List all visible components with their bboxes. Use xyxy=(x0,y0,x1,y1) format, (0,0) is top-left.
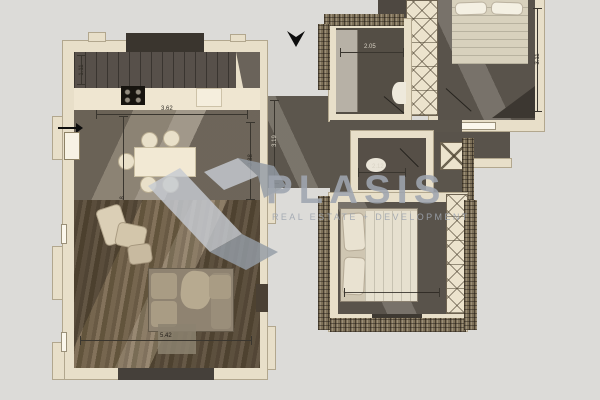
brand-name: PLASIS xyxy=(266,170,446,210)
floor-plan-image: 1.11 3.62 2.48 2.88 5.42 3.19 xyxy=(0,0,600,400)
window xyxy=(61,224,67,244)
dimension-label: 3.62 xyxy=(161,106,173,112)
dimension-line-top xyxy=(96,114,248,115)
stone-wall xyxy=(318,24,330,90)
sofa-cushion xyxy=(209,275,231,299)
dimension-label: 5.42 xyxy=(160,333,172,339)
window xyxy=(460,122,496,130)
down-arrow-marker xyxy=(287,31,305,48)
balcony-door xyxy=(256,284,268,312)
dining-chair xyxy=(118,153,135,170)
stone-wall xyxy=(462,138,474,200)
bed-pillow xyxy=(491,1,523,15)
dining-chair xyxy=(163,130,180,147)
wall-pilaster xyxy=(267,326,276,370)
sofa-cushion xyxy=(151,273,177,299)
bed xyxy=(340,208,418,302)
wall-pilaster xyxy=(88,32,106,42)
dimension-label: 3.11 xyxy=(535,47,541,71)
sofa-blanket xyxy=(179,270,213,311)
brand-logo-mark xyxy=(146,156,286,271)
wall-pilaster xyxy=(52,116,63,160)
brand-logo xyxy=(146,156,286,271)
brand-tagline: REAL ESTATE + DEVELOPMENT xyxy=(272,213,470,222)
stone-wall xyxy=(324,14,404,26)
floor-mat xyxy=(158,324,196,354)
dimension-label: 2.05 xyxy=(364,44,376,50)
patio-door xyxy=(118,368,214,380)
entrance-door xyxy=(64,132,80,160)
refrigerator xyxy=(196,88,222,107)
staircase xyxy=(74,52,236,88)
bed xyxy=(452,0,528,64)
dimension-label: 1.11 xyxy=(79,58,85,82)
dimension-line-bathroom xyxy=(340,52,404,53)
window xyxy=(61,332,67,352)
bed-pillow xyxy=(342,256,366,295)
bed-duvet xyxy=(365,211,417,301)
wall-pilaster xyxy=(52,246,63,300)
sofa xyxy=(148,268,234,332)
dimension-line-bottom xyxy=(80,340,252,341)
upper-landing xyxy=(126,33,204,52)
cooktop xyxy=(121,86,145,105)
shower xyxy=(336,30,358,112)
stone-wall xyxy=(330,318,466,332)
wall-pilaster xyxy=(230,34,246,42)
dimension-label: 3.19 xyxy=(272,129,278,153)
bed-pillow xyxy=(455,1,487,15)
entrance-arrow xyxy=(58,127,78,129)
toilet xyxy=(392,82,406,104)
dimension-line-bed xyxy=(344,292,440,293)
